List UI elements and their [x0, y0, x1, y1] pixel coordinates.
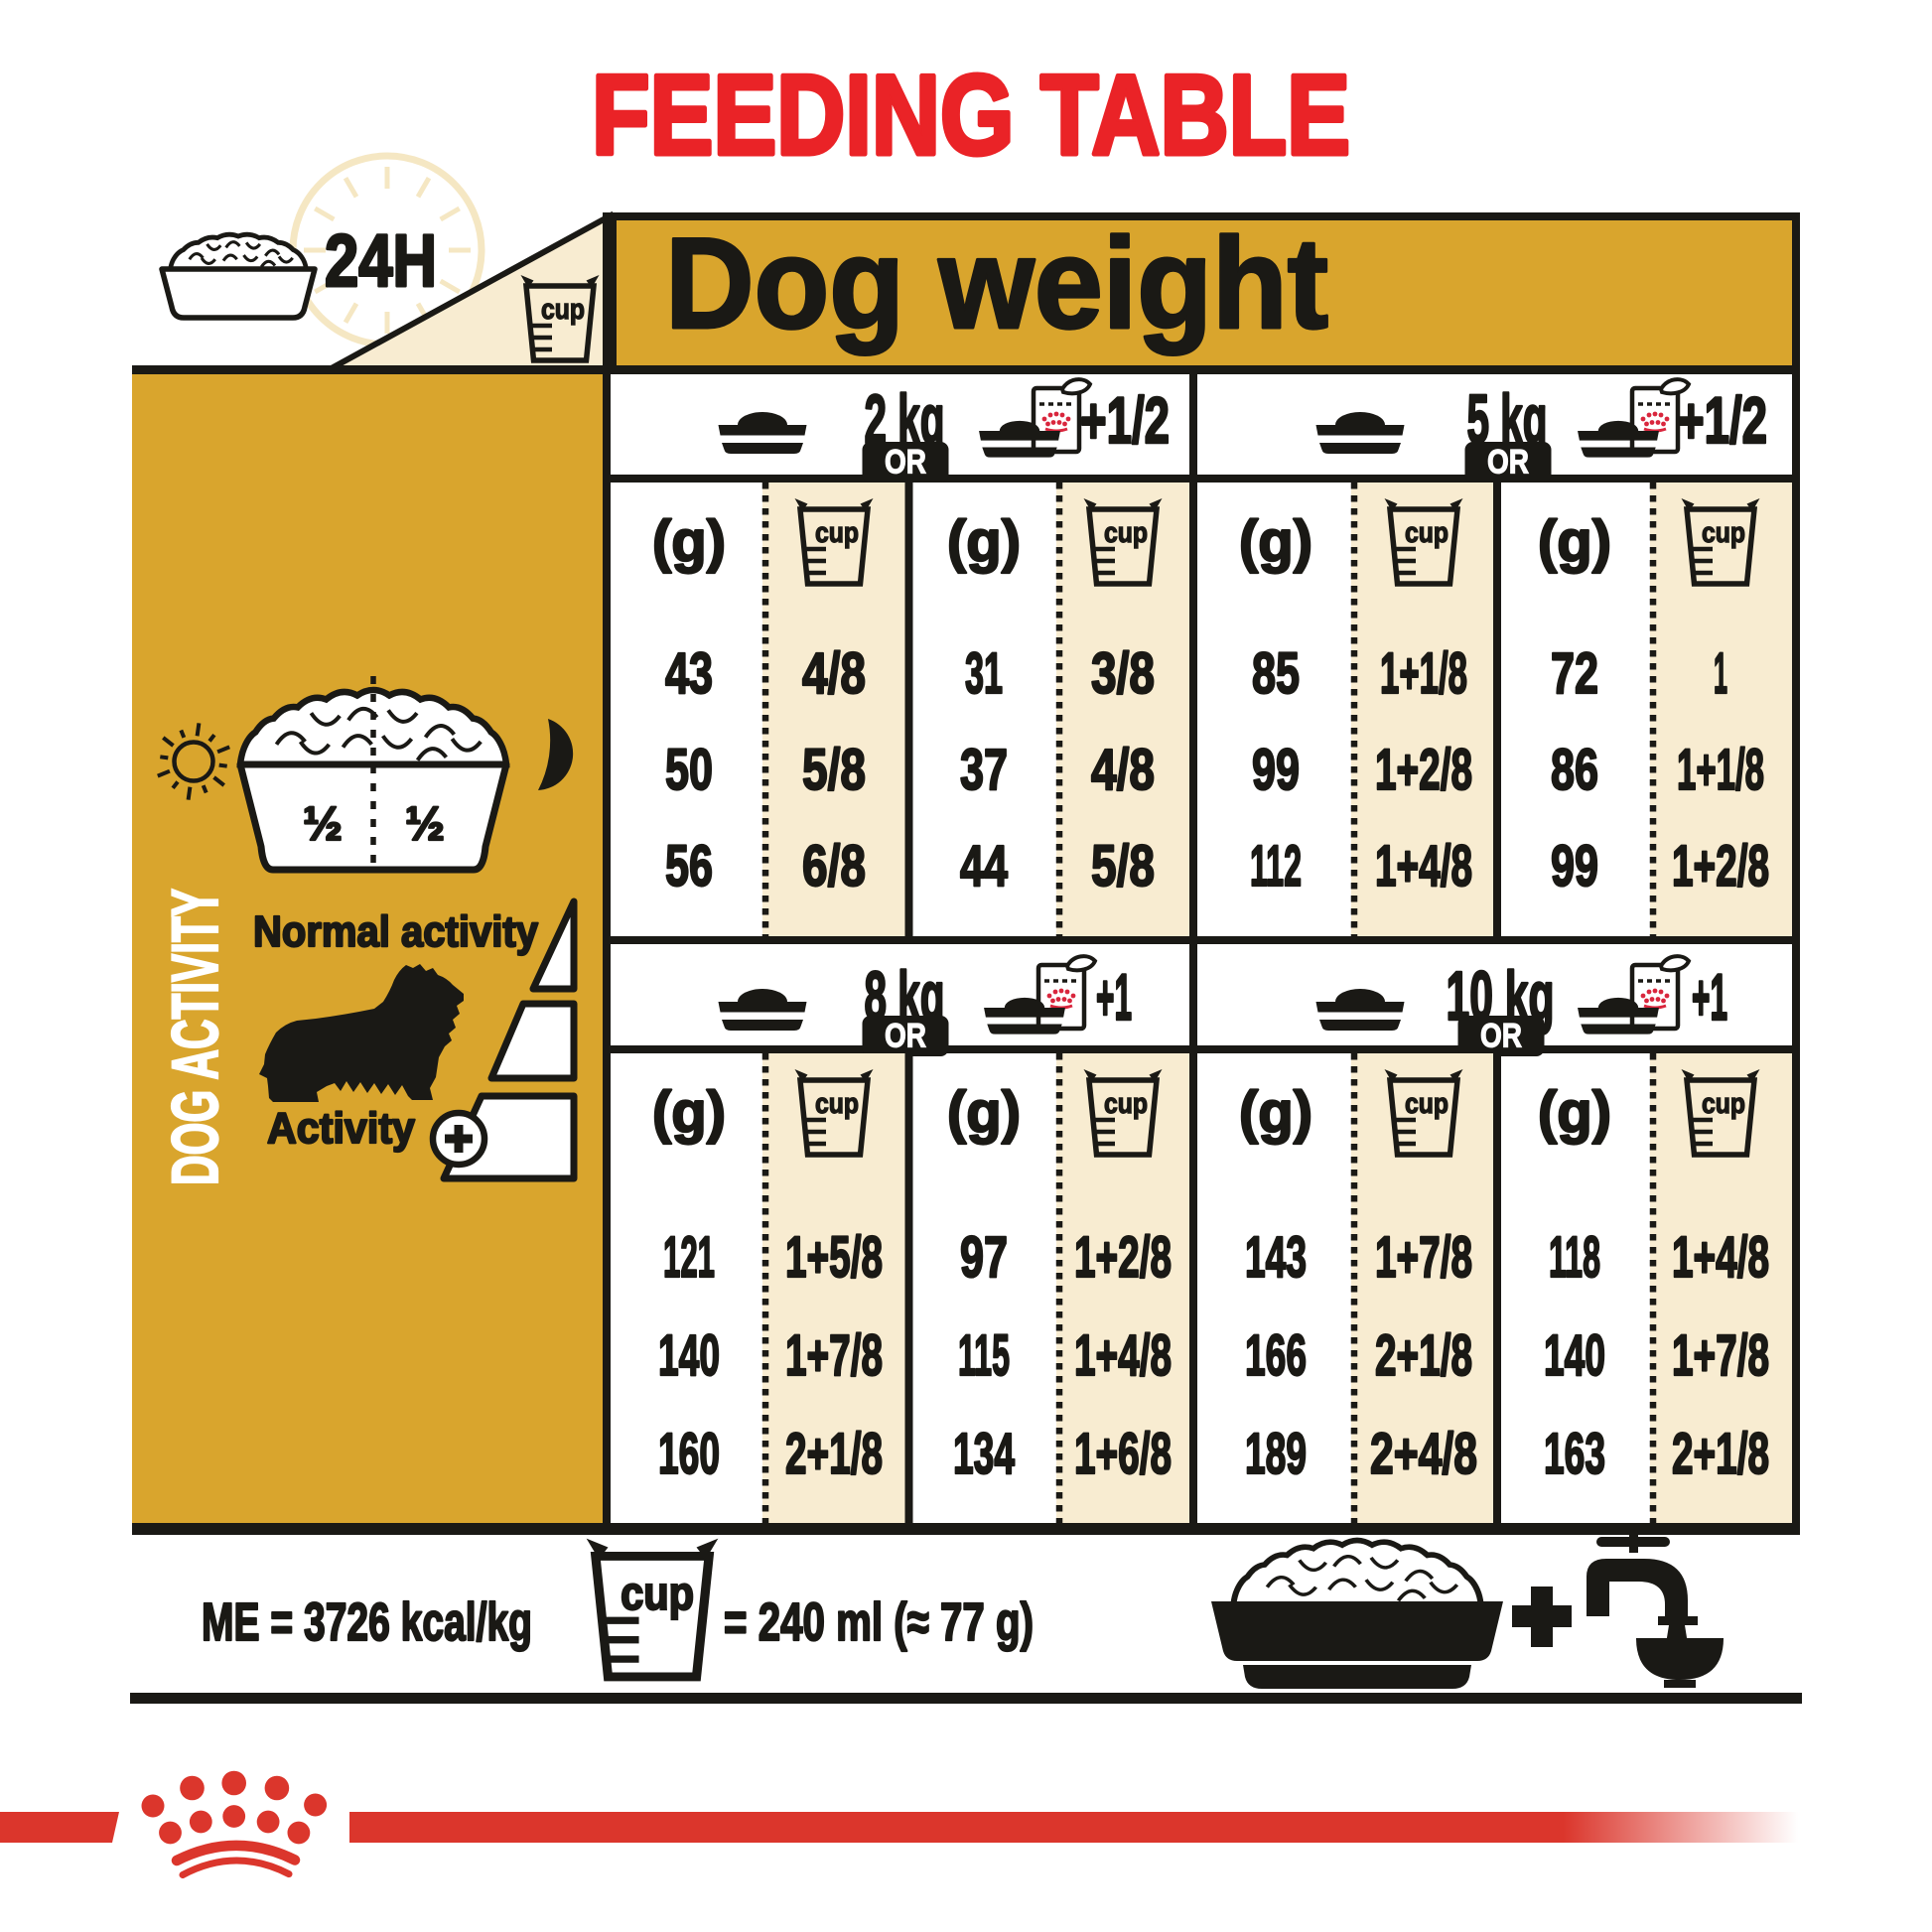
svg-text:1+1/8: 1+1/8 [1677, 738, 1764, 802]
svg-text:134: 134 [953, 1422, 1015, 1486]
svg-text:1+7/8: 1+7/8 [1672, 1323, 1769, 1388]
svg-text:85: 85 [1252, 641, 1300, 706]
svg-text:1+4/8: 1+4/8 [1074, 1323, 1172, 1388]
svg-text:99: 99 [1551, 834, 1598, 898]
svg-text:50: 50 [665, 738, 713, 802]
svg-text:1: 1 [1714, 641, 1727, 706]
svg-text:44: 44 [960, 834, 1008, 898]
svg-text:(g): (g) [1239, 509, 1312, 574]
svg-text:(g): (g) [947, 509, 1021, 574]
svg-text:1+4/8: 1+4/8 [1375, 834, 1472, 898]
svg-text:5/8: 5/8 [1091, 834, 1155, 898]
svg-text:189: 189 [1245, 1422, 1307, 1486]
svg-text:(g): (g) [1538, 1080, 1611, 1145]
svg-text:1+2/8: 1+2/8 [1375, 738, 1472, 802]
svg-text:24H: 24H [325, 219, 437, 302]
svg-text:Activity: Activity [267, 1104, 415, 1153]
svg-text:1+2/8: 1+2/8 [1672, 834, 1769, 898]
svg-text:Normal activity: Normal activity [253, 907, 538, 956]
svg-text:115: 115 [958, 1323, 1010, 1388]
svg-text:2+1/8: 2+1/8 [1375, 1323, 1472, 1388]
svg-text:½: ½ [303, 798, 343, 851]
svg-text:140: 140 [658, 1323, 720, 1388]
svg-text:(g): (g) [652, 509, 726, 574]
svg-text:= 240 ml (≈ 77 g): = 240 ml (≈ 77 g) [724, 1592, 1034, 1652]
svg-text:1+5/8: 1+5/8 [785, 1225, 883, 1290]
svg-text:DOG ACTIVITY: DOG ACTIVITY [158, 889, 231, 1185]
svg-text:163: 163 [1544, 1422, 1605, 1486]
svg-text:(g): (g) [1538, 509, 1611, 574]
svg-text:72: 72 [1551, 641, 1598, 706]
svg-text:97: 97 [960, 1225, 1008, 1290]
svg-text:37: 37 [960, 738, 1008, 802]
svg-text:ME = 3726 kcal/kg: ME = 3726 kcal/kg [202, 1592, 532, 1652]
svg-text:4/8: 4/8 [802, 641, 866, 706]
svg-text:43: 43 [665, 641, 713, 706]
svg-text:118: 118 [1549, 1225, 1600, 1290]
svg-text:2+4/8: 2+4/8 [1370, 1422, 1477, 1486]
svg-text:1+4/8: 1+4/8 [1672, 1225, 1769, 1290]
svg-text:1+1/8: 1+1/8 [1380, 641, 1467, 706]
svg-text:56: 56 [665, 834, 713, 898]
svg-text:121: 121 [663, 1225, 715, 1290]
svg-text:112: 112 [1250, 834, 1302, 898]
svg-text:1+2/8: 1+2/8 [1074, 1225, 1172, 1290]
svg-text:3/8: 3/8 [1091, 641, 1155, 706]
svg-text:+1: +1 [1096, 960, 1132, 1034]
svg-text:31: 31 [965, 641, 1003, 706]
svg-text:FEEDING TABLE: FEEDING TABLE [592, 53, 1350, 179]
svg-text:(g): (g) [947, 1080, 1021, 1145]
svg-text:6/8: 6/8 [802, 834, 866, 898]
svg-text:+1/2: +1/2 [1080, 383, 1170, 457]
svg-text:166: 166 [1245, 1323, 1307, 1388]
svg-text:(g): (g) [652, 1080, 726, 1145]
svg-text:4/8: 4/8 [1091, 738, 1155, 802]
svg-text:99: 99 [1252, 738, 1300, 802]
svg-text:1+7/8: 1+7/8 [785, 1323, 883, 1388]
svg-text:140: 140 [1544, 1323, 1605, 1388]
svg-text:½: ½ [405, 798, 445, 851]
svg-text:2+1/8: 2+1/8 [785, 1422, 883, 1486]
svg-text:2+1/8: 2+1/8 [1672, 1422, 1769, 1486]
svg-text:160: 160 [658, 1422, 720, 1486]
svg-text:Dog weight: Dog weight [665, 210, 1328, 355]
svg-text:+1/2: +1/2 [1678, 383, 1767, 457]
svg-text:1+7/8: 1+7/8 [1375, 1225, 1472, 1290]
svg-text:+1: +1 [1692, 960, 1727, 1034]
svg-text:143: 143 [1245, 1225, 1307, 1290]
svg-text:5/8: 5/8 [802, 738, 866, 802]
svg-text:86: 86 [1551, 738, 1598, 802]
svg-text:1+6/8: 1+6/8 [1074, 1422, 1172, 1486]
svg-text:(g): (g) [1239, 1080, 1312, 1145]
